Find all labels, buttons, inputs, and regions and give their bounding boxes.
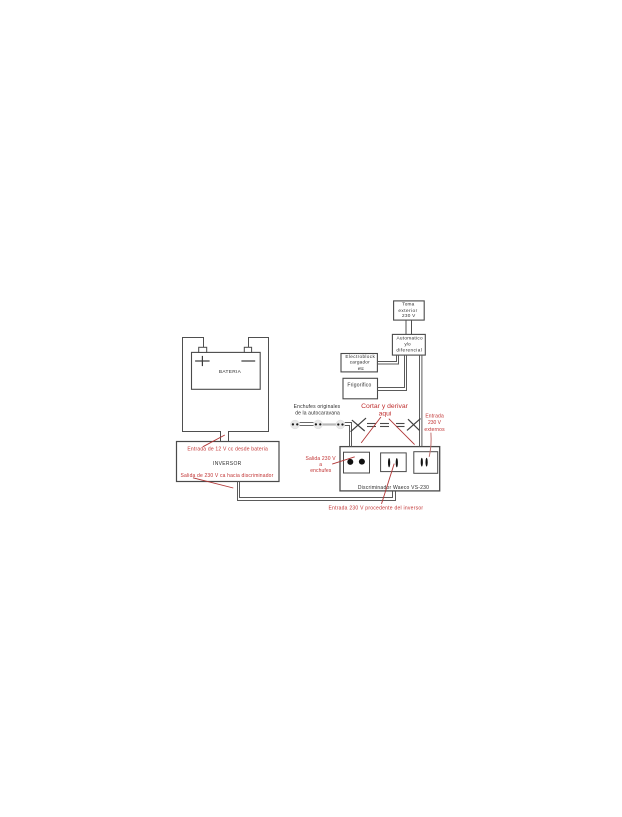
svg-text:Entrada: Entrada [425, 413, 444, 419]
svg-text:230 V: 230 V [402, 313, 416, 318]
svg-text:cargador: cargador [350, 359, 370, 364]
svg-text:Frigorifico: Frigorifico [347, 383, 371, 389]
svg-text:Entrada 230 V procedente del i: Entrada 230 V procedente del inversor [328, 505, 423, 511]
svg-text:Enchufes originales: Enchufes originales [294, 404, 341, 410]
svg-text:INVERSOR: INVERSOR [213, 461, 242, 467]
svg-text:Automatico: Automatico [396, 336, 423, 341]
svg-text:enchufes: enchufes [310, 468, 331, 474]
svg-text:BATERIA: BATERIA [219, 369, 242, 375]
svg-text:Entrada de 12 V cc desde bater: Entrada de 12 V cc desde bateria [187, 446, 268, 452]
svg-text:Discriminador Waeco VS-230: Discriminador Waeco VS-230 [358, 485, 429, 491]
svg-text:externos: externos [424, 427, 445, 433]
svg-text:de la autocaravana: de la autocaravana [295, 410, 340, 416]
svg-text:etc: etc [358, 366, 365, 371]
svg-text:Toma: Toma [402, 302, 414, 307]
svg-text:diferencial: diferencial [396, 347, 422, 352]
svg-text:Cortar y derivar: Cortar y derivar [361, 403, 409, 410]
svg-text:y/o: y/o [404, 342, 411, 347]
svg-text:230 V: 230 V [428, 420, 442, 426]
svg-text:aqui: aqui [379, 411, 392, 418]
